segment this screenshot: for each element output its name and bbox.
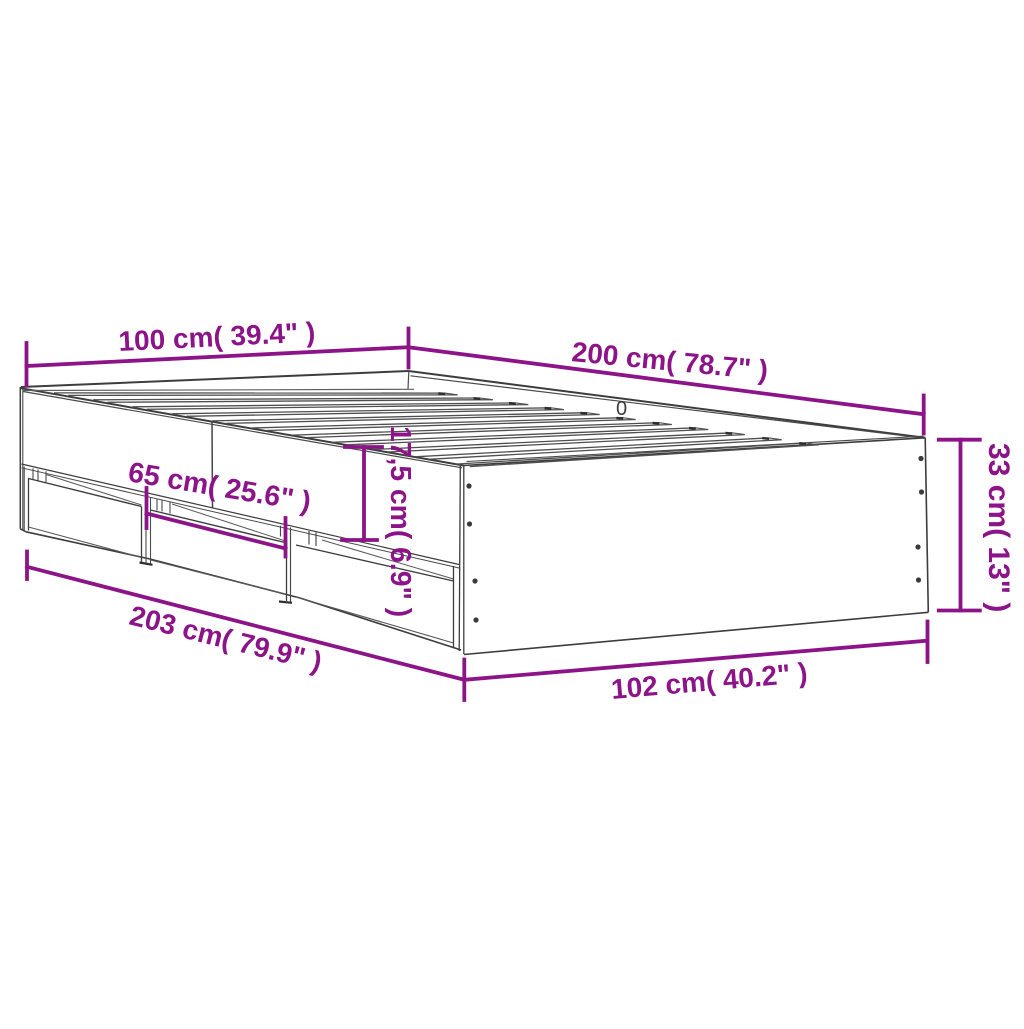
svg-text:0: 0 [616,398,627,420]
svg-text:17,5 cm( 6.9" ): 17,5 cm( 6.9" ) [385,426,417,617]
svg-text:33 cm( 13" ): 33 cm( 13" ) [982,443,1015,612]
